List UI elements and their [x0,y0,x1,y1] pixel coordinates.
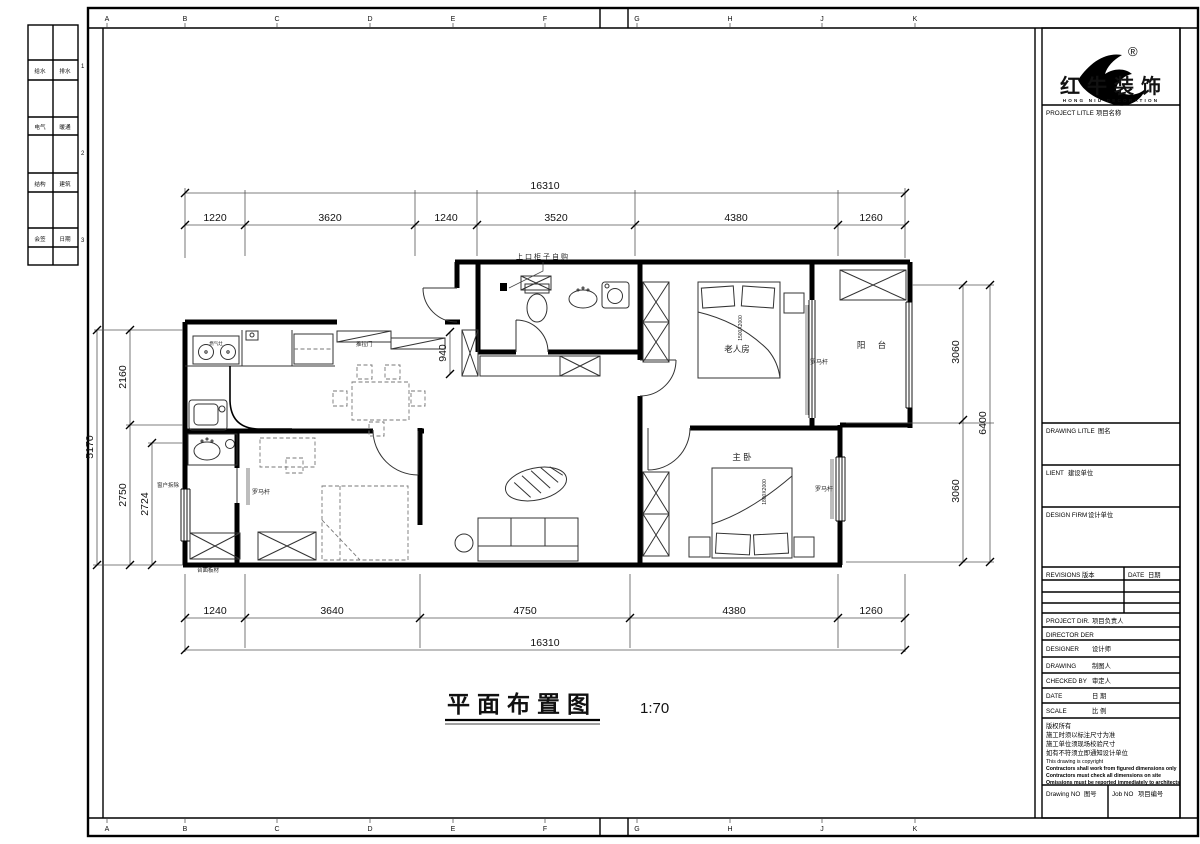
sofa [478,518,578,561]
dim-right-overall: 6400 [977,411,989,435]
grid-letter: B [183,826,188,833]
coffee-table [502,462,569,506]
field-firm-label: DESIGN FIRM [1046,512,1087,519]
small-bathroom [188,434,237,465]
windows [181,300,912,541]
strip-cell: 电气 [34,123,46,131]
field-date-label: DATE [1046,693,1062,700]
floor-plan: 16310 1220 3620 1240 3520 4380 1260 1240… [84,180,994,724]
note-line: Contractors must check all dimensions on… [1046,773,1161,779]
strip-number: 3 [81,238,85,244]
chair [286,458,303,473]
grid-letter: J [820,826,824,833]
field-designer-cn: 设计师 [1092,644,1111,653]
note-curtain-rod: 罗马杆 [252,488,270,496]
dim-top: 1260 [859,212,883,224]
note-line: Omissions must be reported immediately t… [1046,780,1180,786]
grid-letter: H [727,826,732,833]
field-director-label: DIRECTOR DER [1046,632,1094,639]
field-drawing-cn: 制图人 [1092,661,1112,670]
dim-bottom: 1260 [859,605,883,617]
grid-letter: J [820,16,824,23]
field-drawing-title-cn: 图名 [1098,426,1111,435]
grid-letter: D [367,826,372,833]
note-stove: 燃气灶 [209,340,223,347]
strip-cell: 会签 [34,235,46,243]
desk [260,438,315,467]
drawing-title: 平面布置图 1:70 [445,691,669,724]
field-pdir-label: PROJECT DIR. [1046,618,1090,625]
strip-number: 2 [81,151,85,157]
room-label-balcony: 阳 台 [857,340,891,350]
strip-cell: 结构 [34,180,46,188]
field-drawing-title-label: DRAWING LITLE [1046,428,1095,435]
dim-hall: 940 [437,344,449,362]
grid-letter: K [913,826,918,833]
dim-top: 1240 [434,212,458,224]
field-jno-label: Job NO [1112,791,1133,798]
dim-left: 2724 [139,492,151,516]
field-revdate-label: DATE [1128,572,1144,579]
field-scale-label: SCALE [1046,708,1067,715]
dim-right: 3060 [950,340,962,364]
registered-mark: ® [1128,44,1138,59]
grid-letters-top: A B C D E F G H J K [105,16,918,23]
cad-floorplan-sheet: A B C D E F G H J K A B C D E F G H J K [0,0,1200,844]
grid-letter: E [451,826,456,833]
grid-letter: G [634,16,639,23]
room-label-master: 主 卧 [732,452,752,462]
brand-name-cn: 红牛装饰 [1060,74,1168,98]
note-curtain-rod: 罗马杆 [815,485,833,493]
dim-left-overall: 5170 [84,435,96,459]
bed [322,486,408,560]
note-line: 施工单位须现场校验尺寸 [1046,739,1115,748]
field-client-cn: 建设单位 [1068,468,1094,477]
dim-top-overall: 16310 [530,180,559,192]
note-sliding-door: 推拉门 [356,340,373,348]
grid-letter: D [367,16,372,23]
room-label-elder: 老人房 [724,344,750,354]
nightstand [689,537,710,557]
field-dno-cn: 图号 [1084,790,1097,798]
note-board: 台面板材 [197,566,220,574]
dim-left: 2160 [117,365,129,389]
field-jno-cn: 项目编号 [1138,789,1163,798]
grid-letter: B [183,16,188,23]
signoff-strip: 给水 排水 电气 暖通 结构 建筑 会签 日期 1 2 3 [28,25,85,265]
dining-set [333,365,425,436]
plan-scale: 1:70 [640,700,669,717]
field-revdate-cn: 日期 [1148,571,1161,579]
brand-logo: ® 红牛装饰 HONG NIU DECORATION [1060,44,1168,106]
strip-cell: 暖通 [59,123,71,131]
field-scale-cn: 比 例 [1092,706,1106,715]
brand-name-en: HONG NIU DECORATION [1063,98,1160,103]
field-checked-cn: 审定人 [1092,676,1112,685]
strip-cell: 日期 [59,236,71,243]
field-designer-label: DESIGNER [1046,646,1079,653]
field-drawing-label: DRAWING [1046,663,1076,670]
grid-letter: E [451,16,456,23]
dim-bottom: 1240 [203,605,227,617]
title-block-fields: PROJECT LITLE 项目名称 DRAWING LITLE 图名 LIEN… [1046,108,1161,715]
field-date-cn: 日 期 [1092,692,1106,700]
plan-title: 平面布置图 [447,691,597,717]
field-pdir-cn: 项目负责人 [1092,616,1124,625]
strip-cell: 排水 [59,67,71,75]
grid-letter: H [727,16,732,23]
grid-letter: G [634,826,639,833]
grid-letters-bottom: A B C D E F G H J K [105,826,918,833]
dim-left: 2750 [117,483,129,507]
bed-size-elder: 1500X2000 [738,315,744,341]
grid-letter: F [543,826,547,833]
note-line: This drawing is copyright [1046,759,1104,765]
side-table [455,534,473,552]
grid-letter: A [105,16,110,23]
dim-top: 4380 [724,212,748,224]
note-line: Contractors shall work from figured dime… [1046,766,1177,772]
dim-right: 3060 [950,479,962,503]
dim-top: 3520 [544,212,568,224]
bathroom-fixtures [525,282,629,322]
title-block-notes: 版权所有 施工时须以标注尺寸为准 施工单位须现场校验尺寸 如有不符须立即通知设计… [1046,721,1180,786]
field-firm-cn: 设计单位 [1088,510,1114,519]
field-checked-label: CHECKED BY [1046,678,1088,685]
field-project-label: PROJECT LITLE [1046,110,1094,117]
kitchen [185,330,445,430]
field-revisions-label: REVISIONS [1046,572,1080,579]
field-revisions-cn: 版本 [1082,570,1095,579]
grid-letter: C [274,16,279,23]
bed [712,468,792,558]
grid-letter: C [274,826,279,833]
dim-top: 3620 [318,212,342,224]
dim-top: 1220 [203,212,227,224]
nightstand [784,293,804,313]
grid-letter: K [913,16,918,23]
title-block-numbers: Drawing NO 图号 Job NO 项目编号 [1046,789,1163,798]
field-client-label: LIENT [1046,470,1064,477]
note-line: 施工时须以标注尺寸为准 [1046,730,1115,739]
title-block: ® 红牛装饰 HONG NIU DECORATION PROJECT LITLE… [1042,28,1180,818]
dim-bottom-overall: 16310 [530,637,559,649]
note-line: 如有不符须立即通知设计单位 [1046,748,1129,757]
living-room [455,462,578,561]
strip-number: 1 [81,64,85,70]
washing-machine [602,282,629,308]
field-project-cn: 项目名称 [1096,108,1122,117]
elder-bedroom [698,282,804,378]
plan-labels: 老人房 主 卧 阳 台 罗马杆 罗马杆 罗马杆 上口柜子自购 推拉门 窗户拆除 … [157,252,891,574]
note-curtain-rod: 罗马杆 [810,358,828,366]
bed-size-master: 1800X2000 [762,479,768,505]
door-stop [500,283,507,291]
grid-letter: F [543,16,547,23]
note-window: 窗户拆除 [157,481,180,489]
dim-bottom: 4380 [722,605,746,617]
wash-basin [194,442,220,460]
nightstand [794,537,814,557]
strip-cell: 给水 [34,67,46,75]
master-bedroom [689,468,814,558]
second-bedroom [260,438,408,560]
dim-bottom: 3640 [320,605,344,617]
grid-letter: A [105,826,110,833]
strip-cell: 建筑 [59,180,71,188]
note-cabinet: 上口柜子自购 [516,252,570,261]
dimensions: 16310 1220 3620 1240 3520 4380 1260 1240… [84,180,994,654]
field-dno-label: Drawing NO [1046,791,1080,798]
dim-bottom: 4750 [513,605,537,617]
note-line: 版权所有 [1046,721,1071,730]
